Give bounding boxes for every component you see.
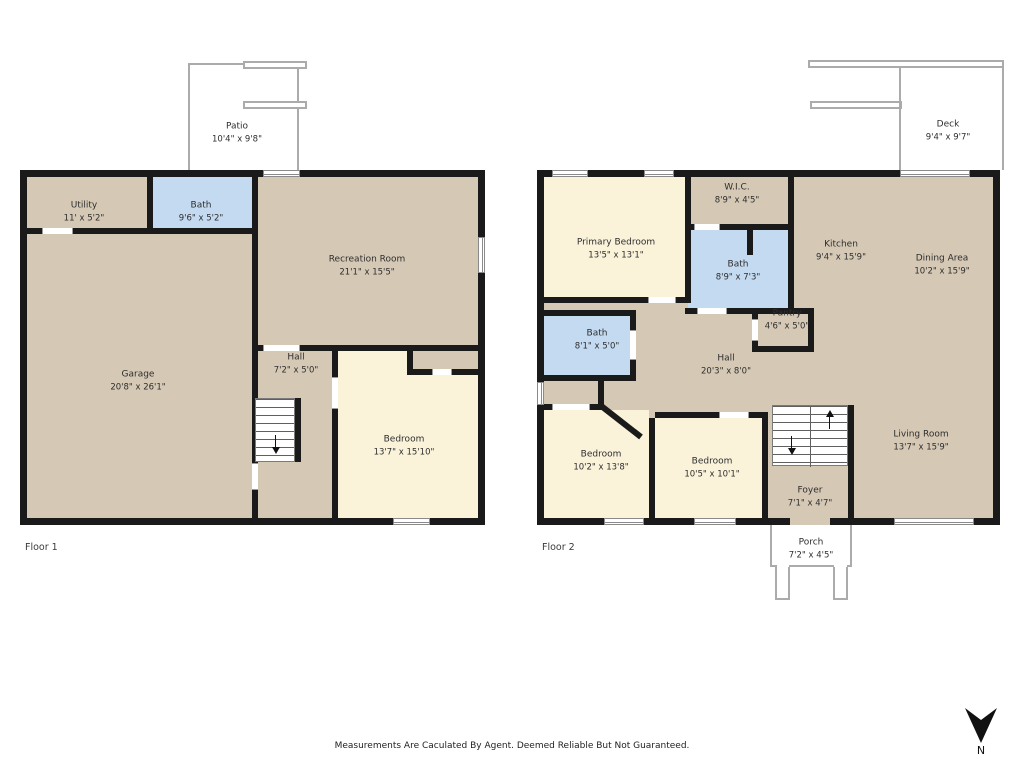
room-name: Bath [716, 258, 761, 271]
wall [332, 345, 338, 377]
room-dims: 7'2" x 5'0" [274, 364, 319, 376]
door-opening [752, 319, 758, 341]
porch-outline [789, 565, 834, 567]
room-label-patio: Patio 10'4" x 9'8" [212, 120, 262, 145]
room-name: Hall [701, 352, 751, 365]
wall [252, 490, 258, 518]
room-dims: 13'7" x 15'9" [893, 441, 948, 453]
north-label: N [961, 744, 1001, 757]
deck-outline [899, 68, 901, 170]
wall [720, 224, 788, 230]
room-name: Porch [789, 536, 834, 549]
room-name: Utility [64, 199, 105, 212]
door-opening [630, 330, 636, 360]
wall [752, 346, 814, 352]
wall [407, 369, 432, 375]
room-dims: 7'2" x 4'5" [789, 549, 834, 561]
north-compass: N [961, 706, 1001, 762]
wall [27, 228, 42, 234]
room-dims: 13'5" x 13'1" [577, 249, 655, 261]
room-name: Living Room [893, 428, 948, 441]
wall [655, 412, 719, 418]
wall [762, 412, 768, 518]
room-label-hall2: Hall 20'3" x 8'0" [701, 352, 751, 377]
deck-outline [1002, 68, 1004, 170]
room-label-bath2: Bath 8'1" x 5'0" [575, 327, 620, 352]
porch-step [846, 567, 848, 600]
door-opening [552, 404, 590, 410]
room-name: Dining Area [914, 252, 969, 265]
room-label-bedroom-a: Bedroom 10'2" x 13'8" [573, 448, 628, 473]
wall [544, 297, 648, 303]
room-label-bath: Bath 9'6" x 5'2" [179, 199, 224, 224]
room-name: Deck [926, 118, 971, 131]
room-dims: 8'9" x 7'3" [716, 271, 761, 283]
patio-railing [243, 101, 307, 109]
wall [685, 308, 697, 314]
wall [300, 345, 478, 351]
window [694, 518, 736, 525]
patio-outline [297, 109, 299, 170]
staircase-updown [772, 405, 848, 466]
room-label-bedroom: Bedroom 13'7" x 15'10" [374, 433, 435, 458]
wall [848, 405, 854, 518]
wall [649, 418, 655, 518]
room-dims: 9'4" x 9'7" [926, 131, 971, 143]
wall [752, 341, 758, 346]
room-dims: 9'4" x 15'9" [816, 251, 866, 263]
wall [332, 409, 338, 518]
room-dims: 20'3" x 8'0" [701, 365, 751, 377]
room-name: Bedroom [573, 448, 628, 461]
door-opening [332, 377, 338, 409]
deck-railing [810, 101, 902, 109]
room-name: Bath [575, 327, 620, 340]
room-label-foyer: Foyer 7'1" x 4'7" [788, 484, 833, 509]
room-label-bath-primary: Bath 8'9" x 7'3" [716, 258, 761, 283]
door-opening [697, 308, 727, 314]
patio-outline [188, 63, 190, 170]
room-dims: 20'8" x 26'1" [110, 381, 165, 393]
wall [685, 177, 691, 303]
door-opening [432, 369, 452, 375]
room-label-bedroom-b: Bedroom 10'5" x 10'1" [684, 455, 739, 480]
room-dims: 9'6" x 5'2" [179, 212, 224, 224]
room-dims: 4'6" x 5'0" [765, 320, 810, 332]
room-label-garage: Garage 20'8" x 26'1" [110, 368, 165, 393]
floorplan-page: Patio 10'4" x 9'8" Utility 11' x 5'2" Ba… [0, 0, 1024, 768]
window [478, 237, 485, 273]
room-name: Garage [110, 368, 165, 381]
room-label-hall: Hall 7'2" x 5'0" [274, 351, 319, 376]
wall [252, 345, 263, 351]
wall [73, 228, 252, 234]
stairs-up-arrow-icon [825, 410, 834, 429]
window [604, 518, 644, 525]
disclaimer-text: Measurements Are Caculated By Agent. Dee… [0, 741, 1024, 751]
room-label-living: Living Room 13'7" x 15'9" [893, 428, 948, 453]
room-name: Patio [212, 120, 262, 133]
room-name: Primary Bedroom [577, 236, 655, 249]
room-dims: 21'1" x 15'5" [329, 266, 406, 278]
door-opening [694, 224, 720, 230]
wall [295, 398, 301, 462]
room-name: Pantry [765, 307, 810, 320]
room-label-primary-bedroom: Primary Bedroom 13'5" x 13'1" [577, 236, 655, 261]
window [894, 518, 974, 525]
room-dims: 10'2" x 13'8" [573, 461, 628, 473]
room-name: Kitchen [816, 238, 866, 251]
porch-step [833, 598, 848, 600]
wall [544, 375, 636, 381]
deck-railing [808, 60, 1004, 68]
room-dims: 13'7" x 15'10" [374, 446, 435, 458]
north-arrow-icon [961, 706, 1001, 744]
wall [788, 177, 794, 308]
porch-step [788, 567, 790, 600]
room-label-recreation: Recreation Room 21'1" x 15'5" [329, 253, 406, 278]
wall [749, 412, 762, 418]
door-opening [42, 228, 73, 234]
room-dims: 10'4" x 9'8" [212, 133, 262, 145]
window [644, 170, 674, 177]
door-opening [648, 297, 676, 303]
floor1-label: Floor 1 [25, 542, 58, 553]
porch-outline [770, 525, 772, 567]
door-opening [252, 463, 258, 490]
wall [407, 345, 413, 369]
wall [544, 404, 552, 410]
room-dims: 10'2" x 15'9" [914, 265, 969, 277]
door-opening [719, 412, 749, 418]
wall [685, 224, 694, 230]
door-opening [263, 345, 300, 351]
wall [747, 224, 753, 255]
room-dims: 8'1" x 5'0" [575, 340, 620, 352]
deck-sliding-door [900, 170, 970, 177]
stairs-down-arrow-icon [787, 436, 796, 455]
room-dims: 11' x 5'2" [64, 212, 105, 224]
room-label-porch: Porch 7'2" x 4'5" [789, 536, 834, 561]
wall [544, 310, 636, 316]
room-label-kitchen: Kitchen 9'4" x 15'9" [816, 238, 866, 263]
room-label-pantry: Pantry 4'6" x 5'0" [765, 307, 810, 332]
window [393, 518, 430, 525]
room-name: Recreation Room [329, 253, 406, 266]
room-dims: 8'9" x 4'5" [715, 194, 760, 206]
room-label-dining: Dining Area 10'2" x 15'9" [914, 252, 969, 277]
room-label-utility: Utility 11' x 5'2" [64, 199, 105, 224]
porch-step [775, 567, 777, 600]
wall [676, 297, 691, 303]
window [552, 170, 588, 177]
room-dims: 10'5" x 10'1" [684, 468, 739, 480]
patio-outline [297, 69, 299, 103]
floor2-label: Floor 2 [542, 542, 575, 553]
patio-railing [243, 61, 307, 69]
staircase-down [255, 398, 295, 462]
room-label-deck: Deck 9'4" x 9'7" [926, 118, 971, 143]
room-name: Foyer [788, 484, 833, 497]
stair-divider [810, 406, 811, 467]
room-name: Bedroom [684, 455, 739, 468]
room-name: Bath [179, 199, 224, 212]
wall [452, 369, 478, 375]
room-name: W.I.C. [715, 181, 760, 194]
room-name: Hall [274, 351, 319, 364]
window [537, 382, 544, 405]
patio-sliding-door [263, 170, 300, 177]
porch-step [833, 567, 835, 600]
wall [630, 310, 636, 330]
room-dims: 7'1" x 4'7" [788, 497, 833, 509]
room-name: Bedroom [374, 433, 435, 446]
patio-outline [188, 63, 245, 65]
wall [147, 177, 153, 228]
porch-outline [850, 525, 852, 567]
front-door-opening [790, 518, 830, 525]
stairs-down-arrow-icon [271, 435, 280, 454]
porch-step [775, 598, 790, 600]
room-label-wic: W.I.C. 8'9" x 4'5" [715, 181, 760, 206]
